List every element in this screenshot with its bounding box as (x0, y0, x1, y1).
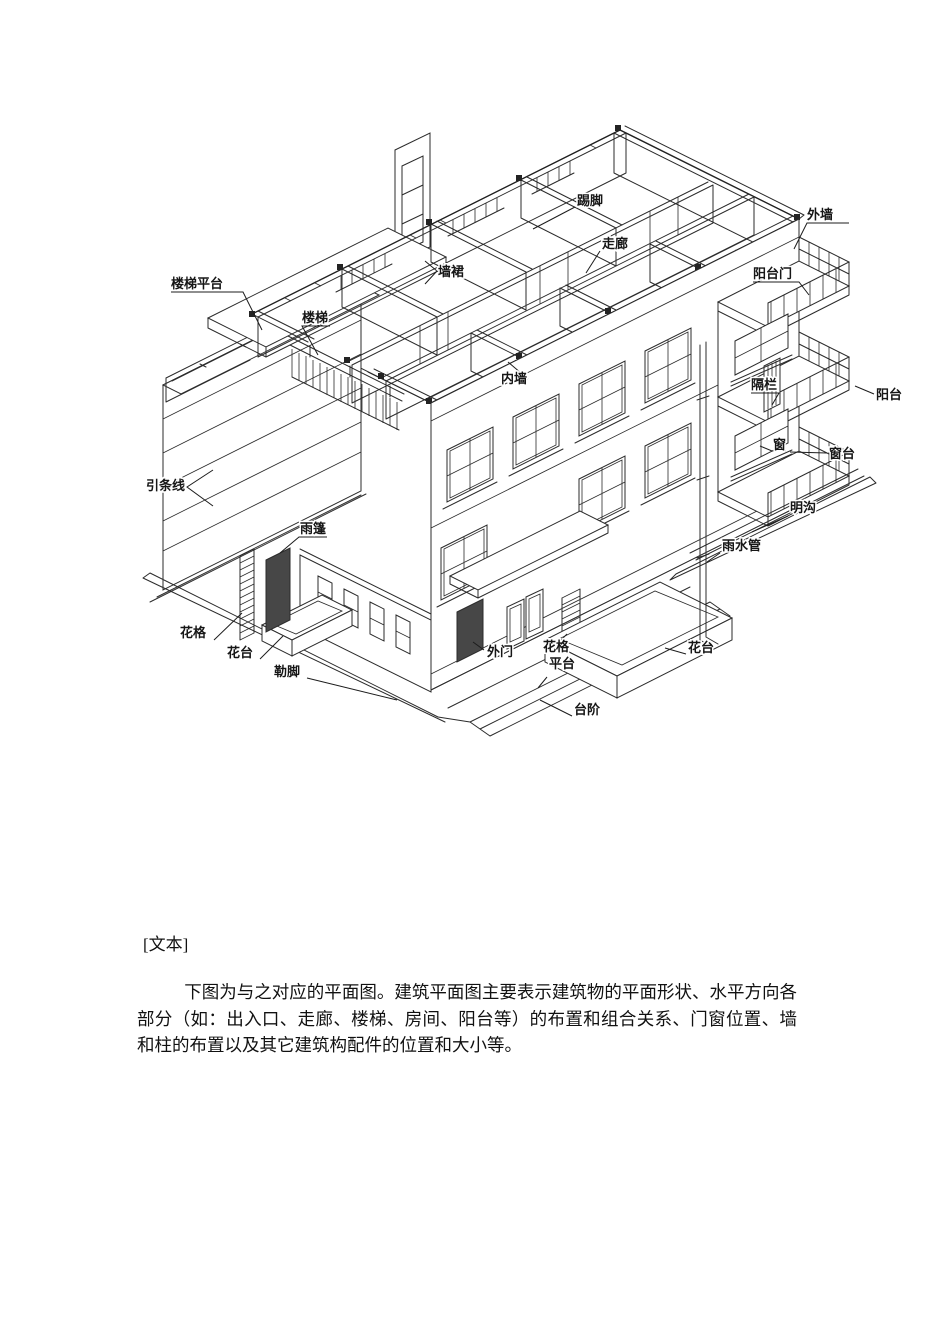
building-axonometric-svg: 楼梯平台楼梯墙裙踢脚走廊外墙阳台门内墙隔栏阳台窗窗台引条线雨篷明沟雨水管花格花台… (0, 0, 950, 800)
figure-label-4: 走廊 (602, 236, 628, 251)
figure-label-20: 花格 (543, 639, 570, 654)
figure-label-19: 外门 (486, 644, 513, 659)
body-paragraph: 下图为与之对应的平面图。建筑平面图主要表示建筑物的平面形状、水平方向各部分（如：… (137, 979, 797, 1059)
figure-label-17: 花台 (227, 645, 253, 660)
section-tag: [文本] (143, 930, 188, 955)
figure-label-11: 窗台 (829, 446, 855, 461)
figure-leader-line (855, 386, 874, 394)
figure-leader-line (794, 223, 849, 249)
figure-label-14: 明沟 (790, 500, 816, 515)
figure-label-13: 雨篷 (300, 521, 327, 536)
figure-leader-line (538, 677, 547, 688)
figure-label-16: 花格 (180, 625, 207, 640)
figure-label-23: 台阶 (574, 702, 601, 717)
figure-label-5: 外墙 (806, 207, 833, 222)
figure-leader-line (307, 678, 397, 700)
figure-label-18: 勒脚 (274, 664, 300, 679)
figure-label-22: 平台 (549, 656, 575, 671)
figure-label-2: 墙裙 (438, 264, 464, 279)
figure-leader-line (540, 700, 572, 716)
building-axonometric-figure: 楼梯平台楼梯墙裙踢脚走廊外墙阳台门内墙隔栏阳台窗窗台引条线雨篷明沟雨水管花格花台… (0, 0, 950, 800)
figure-label-8: 隔栏 (751, 377, 777, 392)
figure-label-1: 楼梯 (302, 310, 328, 325)
figure-leader-line (214, 613, 242, 640)
figure-label-12: 引条线 (146, 478, 185, 493)
figure-label-7: 内墙 (501, 371, 527, 386)
figure-label-0: 楼梯平台 (171, 276, 223, 291)
figure-label-21: 花台 (688, 640, 714, 655)
figure-label-6: 阳台门 (753, 266, 792, 281)
figure-label-9: 阳台 (876, 387, 902, 402)
figure-label-15: 雨水管 (722, 538, 761, 553)
figure-label-10: 窗 (773, 437, 786, 452)
figure-label-3: 踢脚 (577, 193, 603, 208)
page: 楼梯平台楼梯墙裙踢脚走廊外墙阳台门内墙隔栏阳台窗窗台引条线雨篷明沟雨水管花格花台… (0, 0, 950, 1344)
